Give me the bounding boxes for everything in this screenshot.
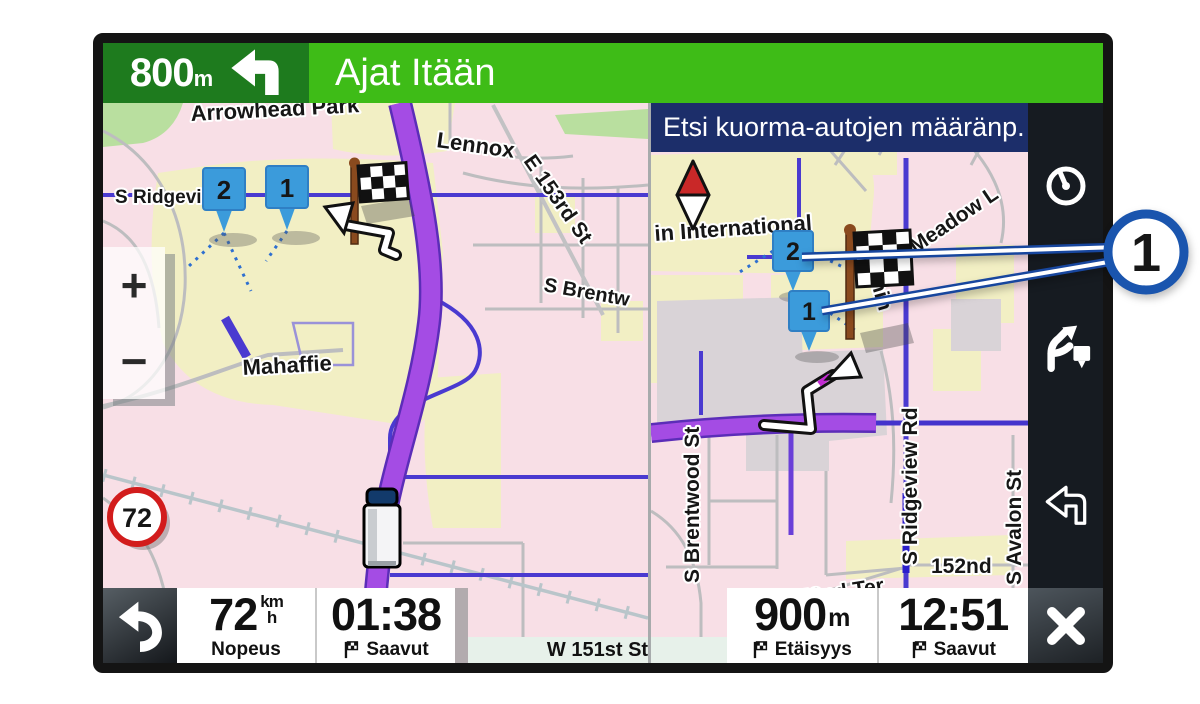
speed-cell[interactable]: 72kmh Nopeus — [177, 588, 315, 663]
guidance-bar[interactable]: 800m Ajat Itään — [103, 43, 1103, 103]
panel-shadow — [455, 588, 468, 663]
trip-data-panel: 72kmh Nopeus 01:38 Saavut — [177, 588, 455, 663]
secondary-map[interactable]: in International E Meadow L Garmin S Rid… — [651, 103, 1028, 663]
trip-computer-button[interactable] — [1028, 148, 1103, 223]
distance-cell[interactable]: 900m Etäisyys — [727, 588, 877, 663]
eta-label: Saavut — [366, 639, 428, 661]
speed-limit-sign: 72 — [110, 490, 170, 550]
map-toolbar — [1028, 103, 1103, 663]
arrival-cell[interactable]: 12:51 Saavut — [877, 588, 1029, 663]
speedometer-icon — [1042, 162, 1090, 210]
street-label: S Ridgeview Rd — [899, 407, 922, 565]
instruction-panel: Ajat Itään — [309, 43, 1103, 103]
street-label: 152nd — [931, 555, 992, 578]
back-arrow-icon — [114, 596, 166, 656]
next-turn-panel: 800m — [103, 43, 309, 103]
svg-text:1: 1 — [280, 173, 294, 203]
map-split-divider — [648, 103, 651, 663]
gps-screen: 800m Ajat Itään — [103, 43, 1103, 663]
arrival-label: Saavut — [934, 639, 996, 661]
zoom-in-button[interactable]: + — [103, 247, 165, 323]
speed-label: Nopeus — [211, 639, 281, 661]
zoom-controls: + − — [103, 247, 165, 399]
distance-label: Etäisyys — [775, 639, 852, 661]
close-split-view-button[interactable] — [1028, 588, 1103, 663]
road-branch-flag-icon — [1040, 320, 1092, 372]
svg-text:72: 72 — [122, 503, 152, 533]
back-button[interactable] — [103, 588, 177, 663]
checkered-flag-icon — [911, 640, 929, 660]
street-label: S Avalon St — [1003, 470, 1026, 585]
hook-back-arrow-icon — [1043, 485, 1089, 527]
svg-text:1: 1 — [1131, 223, 1161, 283]
map-area: Arrowhead Park Lennox E 153rd St S Ridge… — [103, 103, 1103, 663]
current-street-name: W 151st St — [547, 639, 648, 662]
close-icon — [1044, 604, 1088, 648]
back-to-route-button[interactable] — [1028, 468, 1103, 543]
destination-data-panel: 900m Etäisyys 12:51 — [727, 588, 1028, 663]
svg-text:1: 1 — [802, 298, 816, 326]
screenshot-page: 800m Ajat Itään — [0, 0, 1200, 704]
svg-text:2: 2 — [786, 238, 800, 266]
current-street-bar: W 151st St — [468, 637, 727, 663]
street-label: Mahaffie — [242, 350, 332, 380]
eta-cell[interactable]: 01:38 Saavut — [315, 588, 455, 663]
checkered-flag-icon — [343, 640, 361, 660]
gps-device-frame: 800m Ajat Itään — [93, 33, 1113, 673]
main-map[interactable]: Arrowhead Park Lennox E 153rd St S Ridge… — [103, 103, 648, 663]
truck-vehicle-icon — [364, 489, 400, 567]
zoom-out-button[interactable]: − — [103, 323, 165, 399]
route-overview-button[interactable] — [1028, 308, 1103, 383]
callout-1-badge: 1 — [1108, 214, 1184, 290]
turn-distance: 800m — [130, 51, 212, 96]
street-label: S Brentwood St — [681, 427, 704, 583]
turn-left-arrow-icon — [228, 49, 282, 97]
truck-destination-search-banner[interactable]: Etsi kuorma-autojen määränp. — [651, 103, 1028, 152]
checkered-flag-icon — [752, 640, 770, 660]
svg-text:2: 2 — [217, 175, 231, 205]
instruction-text: Ajat Itään — [335, 52, 496, 95]
